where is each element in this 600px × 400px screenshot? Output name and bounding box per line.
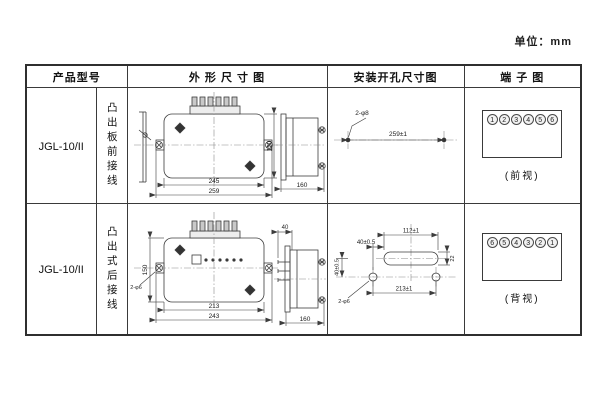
terminal-6: 6	[547, 114, 558, 125]
dim-width-outer-2: 243	[208, 313, 219, 320]
row-rear-wiring: JGL-10/II 凸出式后接线	[26, 204, 581, 336]
unit-label: 单位：mm	[514, 33, 572, 49]
dim-slot-width: 112±1	[402, 229, 419, 235]
corner-screw-icon	[245, 161, 255, 171]
terminal-diagram-front: 1 2 3 4 5 6 (前视)	[465, 110, 581, 182]
dim-offset-h: 40±0.5	[356, 240, 375, 246]
label-holes-2: 2-φ6	[338, 299, 350, 305]
dim-width-outer-1: 259	[208, 188, 219, 195]
terminal-4: 4	[523, 114, 534, 125]
wiring-type-1: 凸出板前接线	[106, 102, 117, 189]
header-product-model: 产品型号	[26, 65, 127, 88]
corner-screw-icon	[175, 123, 185, 133]
terminal-5: 5	[535, 114, 546, 125]
terminal-box: 6 5 4 3 2 1	[482, 233, 562, 281]
outline-drawing-rear-wiring: 150 2-φ6 213 243 40 160	[128, 204, 327, 334]
dim-depth-1: 160	[296, 182, 307, 189]
dim-span-1: 259±1	[388, 131, 406, 138]
header-install-holes: 安装开孔尺寸图	[327, 65, 464, 88]
dim-width-inner-1: 245	[208, 178, 219, 185]
terminal-diagram-rear: 6 5 4 3 2 1 (背视)	[465, 233, 581, 305]
terminal-4: 4	[511, 237, 522, 248]
model-name-1: JGL-10/II	[39, 141, 84, 153]
dim-height-1: 150	[266, 140, 273, 151]
spec-table: 产品型号 外 形 尺 寸 图 安装开孔尺寸图 端 子 图 JGL-10/II 凸…	[25, 64, 582, 336]
wiring-type-2: 凸出式后接线	[106, 226, 117, 313]
terminal-1: 1	[487, 114, 498, 125]
label-ear-holes-2: 2-φ6	[130, 285, 142, 291]
terminal-3: 3	[523, 237, 534, 248]
dim-offset-v: 40±0.5	[334, 259, 340, 276]
header-row: 产品型号 外 形 尺 寸 图 安装开孔尺寸图 端 子 图	[26, 65, 581, 88]
dim-depth-2: 160	[299, 316, 310, 323]
dim-height-2: 150	[142, 264, 149, 275]
terminal-box: 1 2 3 4 5 6	[482, 110, 562, 158]
view-caption-front: (前视)	[505, 167, 540, 182]
datasheet-page: 单位：mm 产品型号 外 形 尺 寸 图 安装开孔尺寸图 端 子 图 JGL-1…	[0, 0, 600, 400]
terminal-3: 3	[511, 114, 522, 125]
corner-screw-icon	[175, 245, 185, 255]
terminal-2: 2	[499, 114, 510, 125]
terminal-2: 2	[535, 237, 546, 248]
dim-slot-height: 22	[450, 255, 456, 261]
view-caption-rear: (背视)	[505, 290, 540, 305]
panel-screw-icon	[139, 130, 151, 140]
dim-width-inner-2: 213	[208, 303, 219, 310]
terminal-1: 1	[547, 237, 558, 248]
install-drawing-rear-wiring: 112±1 40±0.5 40±0.5 22 213±1 2-φ6	[328, 204, 464, 334]
install-drawing-front-wiring: 2-φ8 259±1	[328, 88, 464, 203]
terminal-5: 5	[499, 237, 510, 248]
header-outline-dimensions: 外 形 尺 寸 图	[127, 65, 327, 88]
dim-span-2: 213±1	[395, 287, 412, 293]
model-name-2: JGL-10/II	[39, 264, 84, 276]
header-terminal-diagram: 端 子 图	[464, 65, 581, 88]
terminal-6: 6	[487, 237, 498, 248]
dim-top-depth-2: 40	[281, 225, 288, 231]
row-front-wiring: JGL-10/II 凸出板前接线	[26, 88, 581, 204]
label-holes-1: 2-φ8	[355, 110, 369, 117]
corner-screw-icon	[245, 285, 255, 295]
outline-drawing-front-wiring: 245 259 150 160	[128, 88, 327, 203]
